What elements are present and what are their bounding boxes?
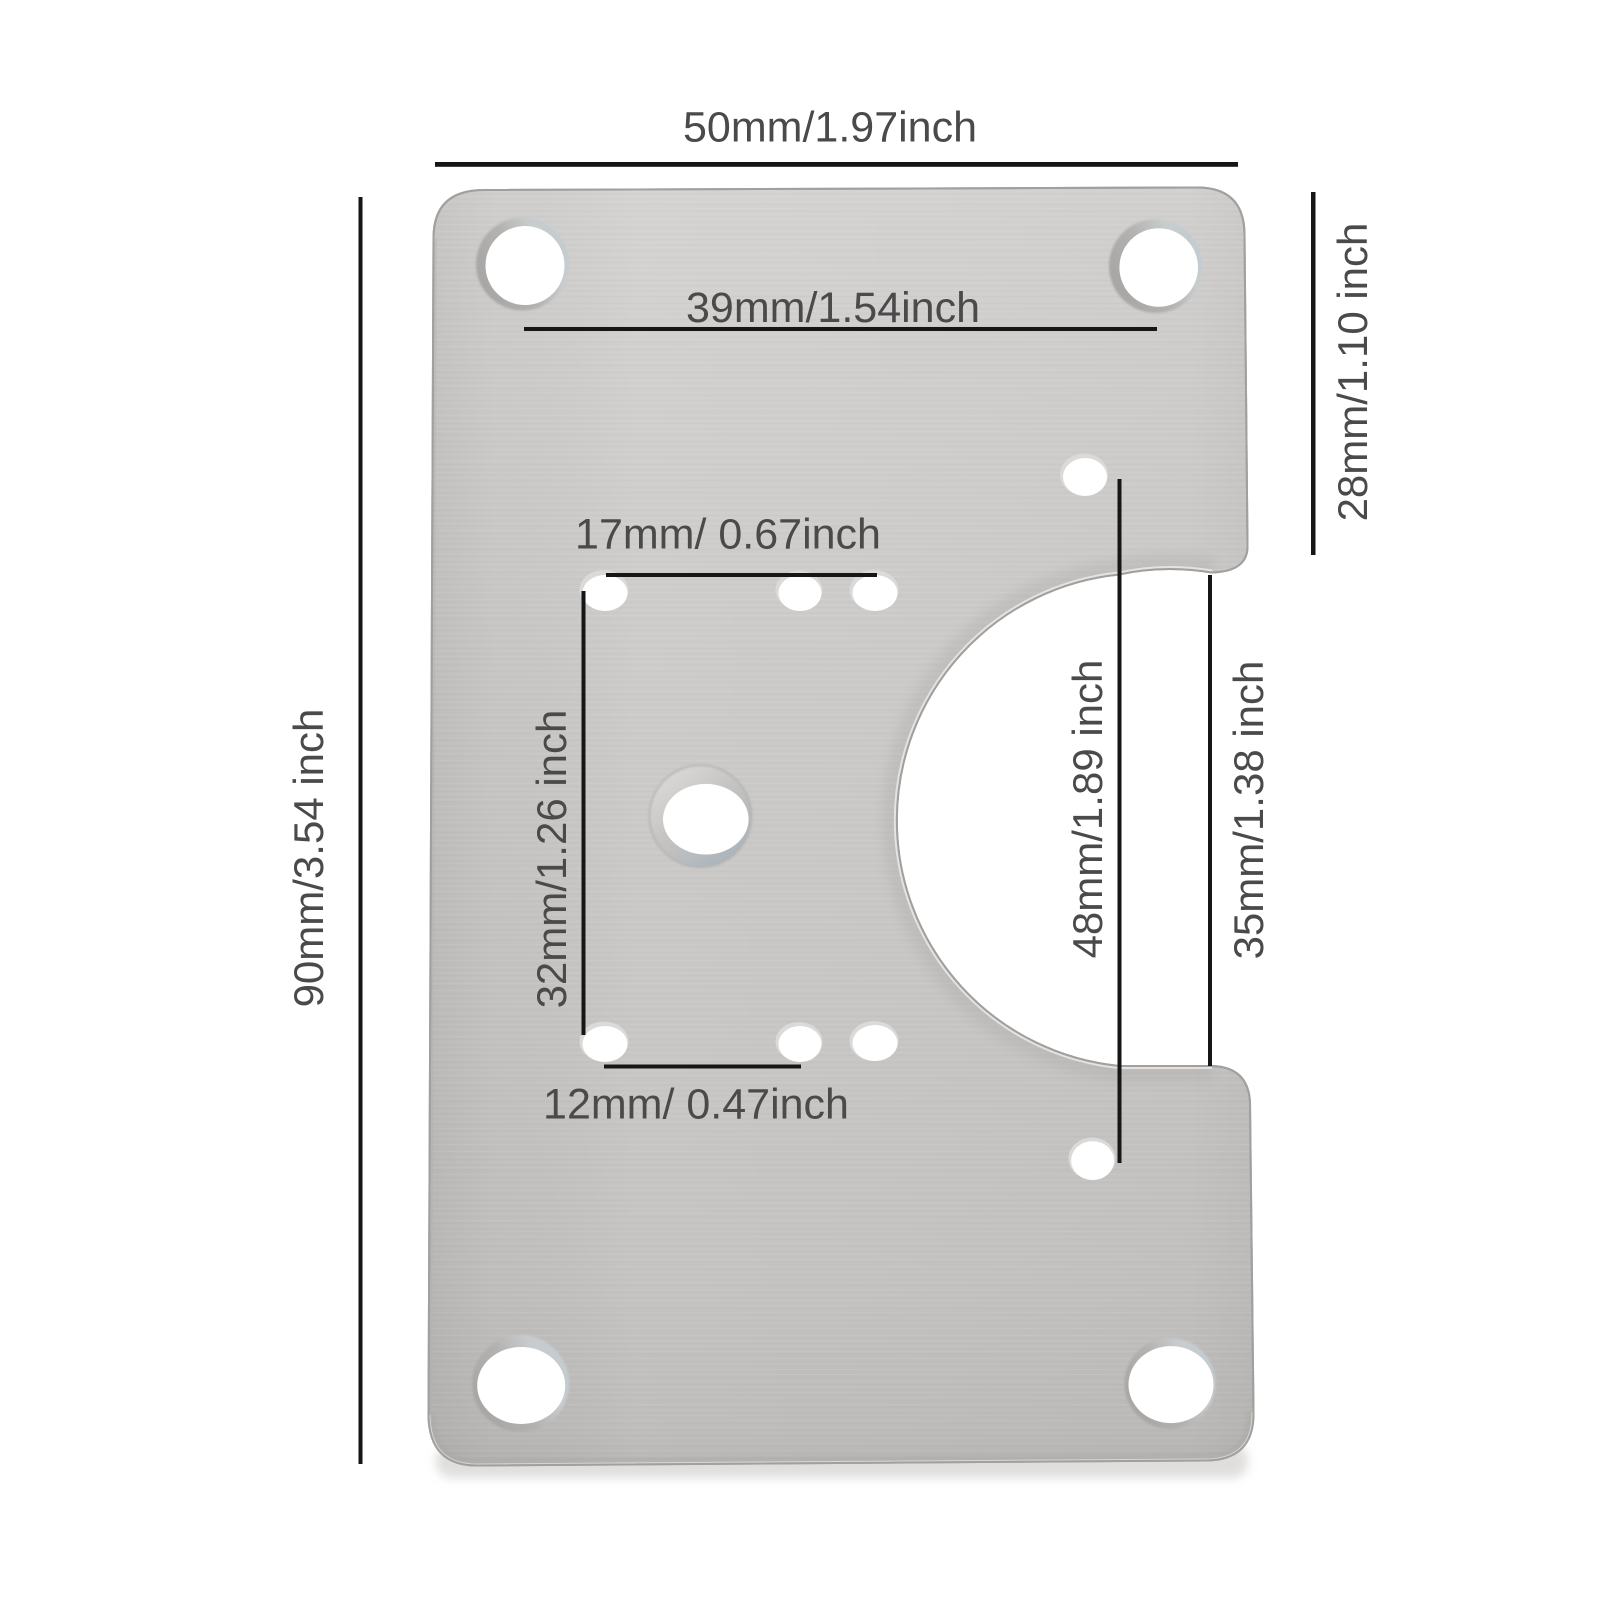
svg-text:28mm/1.10 inch: 28mm/1.10 inch xyxy=(1329,223,1376,522)
svg-text:90mm/3.54 inch: 90mm/3.54 inch xyxy=(285,709,332,1008)
svg-text:12mm/ 0.47inch: 12mm/ 0.47inch xyxy=(543,1081,849,1129)
svg-text:17mm/ 0.67inch: 17mm/ 0.67inch xyxy=(575,511,881,559)
svg-text:32mm/1.26 inch: 32mm/1.26 inch xyxy=(528,710,575,1009)
svg-text:50mm/1.97inch: 50mm/1.97inch xyxy=(683,104,977,152)
svg-text:39mm/1.54inch: 39mm/1.54inch xyxy=(686,284,980,332)
svg-text:48mm/1.89 inch: 48mm/1.89 inch xyxy=(1064,660,1111,959)
svg-text:35mm/1.38 inch: 35mm/1.38 inch xyxy=(1225,661,1272,960)
